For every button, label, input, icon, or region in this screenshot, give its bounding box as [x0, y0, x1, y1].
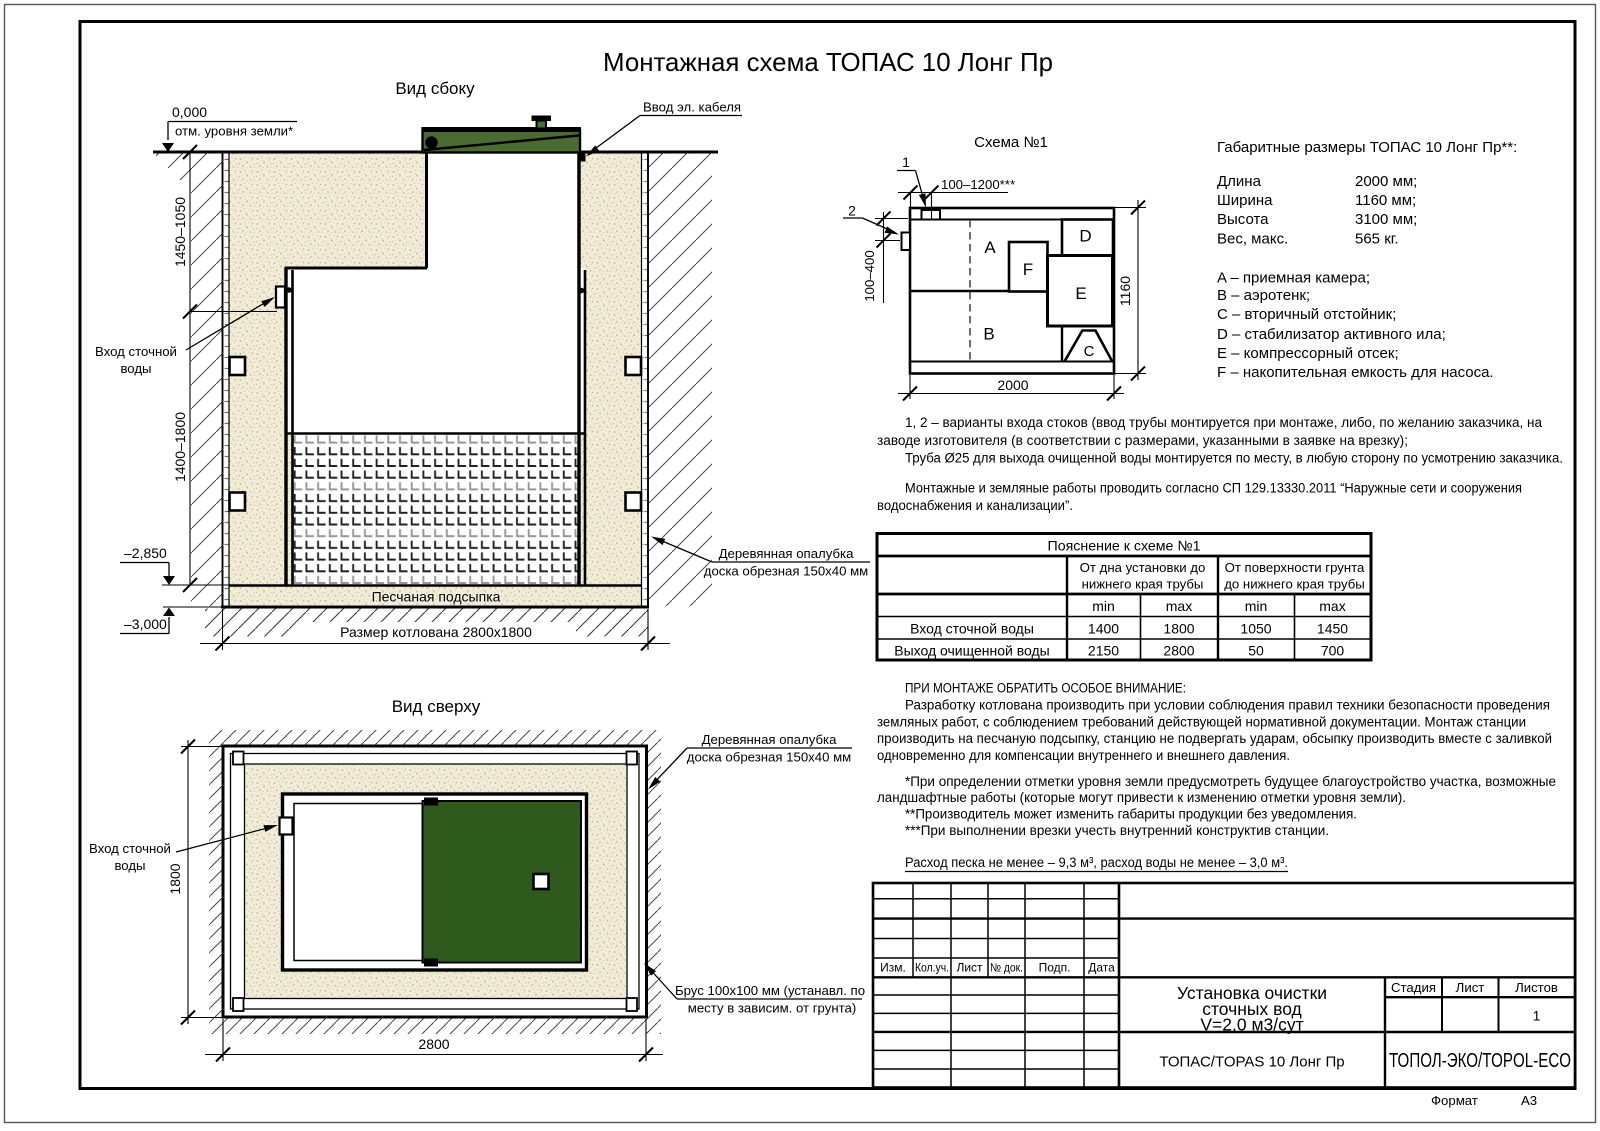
svg-text:1800: 1800 [1163, 621, 1194, 637]
svg-text:1160 мм;: 1160 мм; [1355, 192, 1416, 209]
svg-text:От поверхности грунта: От поверхности грунта [1225, 560, 1365, 575]
svg-text:min: min [1245, 598, 1268, 614]
svg-text:Высота: Высота [1217, 211, 1269, 228]
svg-text:0,000: 0,000 [172, 104, 207, 120]
svg-text:1160: 1160 [1117, 276, 1133, 306]
svg-text:Вес, макс.: Вес, макс. [1217, 231, 1288, 248]
svg-text:Листов: Листов [1515, 980, 1558, 995]
svg-text:B: B [983, 325, 994, 344]
svg-text:одновременно для компенсации в: одновременно для компенсации внутреннего… [877, 748, 1290, 764]
svg-text:Деревянная опалубка: Деревянная опалубка [719, 546, 854, 561]
svg-text:max: max [1319, 598, 1345, 614]
svg-text:водоснабжения и канализации”.: водоснабжения и канализации”. [877, 498, 1073, 514]
svg-text:Вход сточной: Вход сточной [89, 841, 171, 856]
svg-text:1800: 1800 [167, 863, 183, 894]
svg-text:100–1200***: 100–1200*** [941, 177, 1015, 192]
svg-text:ТОПАС/TOPAS 10 Лонг Пр: ТОПАС/TOPAS 10 Лонг Пр [1159, 1054, 1344, 1071]
svg-text:1050: 1050 [1240, 621, 1271, 637]
svg-text:Изм.: Изм. [880, 961, 906, 975]
svg-text:Пояснение к схеме №1: Пояснение к схеме №1 [1048, 539, 1201, 555]
svg-text:2000 мм;: 2000 мм; [1355, 173, 1417, 190]
svg-text:Схема №1: Схема №1 [974, 134, 1048, 151]
svg-text:100–400: 100–400 [862, 250, 877, 301]
svg-text:2150: 2150 [1088, 643, 1119, 659]
svg-text:№ док.: № док. [990, 961, 1023, 975]
svg-text:до нижнего края трубы: до нижнего края трубы [1224, 577, 1365, 592]
svg-text:воды: воды [114, 858, 145, 873]
svg-text:Брус 100х100 мм (устанавл. по: Брус 100х100 мм (устанавл. по [675, 983, 865, 998]
svg-text:месту в зависим. от грунта): месту в зависим. от грунта) [688, 1001, 856, 1016]
svg-text:C: C [1084, 343, 1095, 360]
svg-text:воды: воды [120, 361, 151, 376]
svg-text:1: 1 [902, 154, 910, 170]
svg-text:max: max [1166, 598, 1192, 614]
svg-text:ПРИ МОНТАЖЕ ОБРАТИТЬ ОСОБОЕ ВН: ПРИ МОНТАЖЕ ОБРАТИТЬ ОСОБОЕ ВНИМАНИЕ: [905, 681, 1186, 697]
svg-text:1: 1 [1533, 1008, 1541, 1024]
svg-text:2800: 2800 [1163, 643, 1194, 659]
svg-text:565 кг.: 565 кг. [1355, 231, 1399, 248]
svg-text:ландшафтные работы (которые мо: ландшафтные работы (которые могут привес… [877, 790, 1406, 806]
svg-text:Вход сточной: Вход сточной [95, 344, 177, 359]
svg-text:***При выполнении врезки учест: ***При выполнении врезки учесть внутренн… [905, 823, 1329, 839]
svg-text:Лист: Лист [956, 961, 983, 975]
svg-text:От дна установки до: От дна установки до [1080, 560, 1206, 575]
svg-text:Размер котлована 2800х1800: Размер котлована 2800х1800 [340, 624, 532, 640]
svg-text:нижнего края трубы: нижнего края трубы [1082, 577, 1204, 592]
svg-text:производить на песчаную подсып: производить на песчаную подсыпку, станци… [877, 731, 1552, 747]
svg-text:C – вторичный отстойник;: C – вторичный отстойник; [1217, 306, 1396, 323]
svg-text:Вид сверху: Вид сверху [392, 697, 481, 716]
svg-text:*При определении отметки уровн: *При определении отметки уровня земли пр… [905, 774, 1556, 790]
svg-text:–3,000: –3,000 [124, 616, 167, 632]
svg-text:Длина: Длина [1217, 173, 1262, 190]
svg-text:D – стабилизатор активного ила: D – стабилизатор активного ила; [1217, 326, 1446, 343]
svg-text:Деревянная опалубка: Деревянная опалубка [702, 732, 837, 747]
svg-text:1, 2 – варианты входа стоков: 1, 2 – варианты входа стоков (ввод трубы… [905, 415, 1542, 431]
svg-text:заводе изготовителя (в соответ: заводе изготовителя (в соответствии с ра… [877, 433, 1408, 449]
svg-text:Песчаная подсыпка: Песчаная подсыпка [372, 589, 501, 605]
svg-text:Лист: Лист [1456, 980, 1485, 995]
svg-text:1450: 1450 [1317, 621, 1348, 637]
svg-text:Габаритные размеры ТОПАС 10 Ло: Габаритные размеры ТОПАС 10 Лонг Пр**: [1217, 139, 1517, 156]
svg-text:2: 2 [848, 203, 856, 219]
svg-text:отм. уровня земли*: отм. уровня земли* [175, 124, 293, 139]
svg-text:Дата: Дата [1088, 961, 1115, 975]
svg-text:50: 50 [1248, 643, 1264, 659]
svg-text:2000: 2000 [997, 377, 1028, 393]
svg-text:А3: А3 [1521, 1093, 1537, 1108]
svg-text:земляных работ, с соблюдением: земляных работ, с соблюдением требований… [877, 715, 1526, 731]
svg-text:Разработку котлована производи: Разработку котлована производить при усл… [905, 698, 1550, 714]
svg-text:E – компрессорный отсек;: E – компрессорный отсек; [1217, 345, 1399, 362]
svg-text:Подп.: Подп. [1039, 961, 1071, 975]
svg-text:D: D [1079, 227, 1091, 246]
svg-text:Ширина: Ширина [1217, 192, 1273, 209]
svg-text:F – накопительная емкость для: F – накопительная емкость для насоса. [1217, 364, 1494, 381]
svg-text:Монтажные и земляные работы пр: Монтажные и земляные работы проводить со… [905, 481, 1522, 497]
svg-text:Расход песка не менее – 9,3 м³: Расход песка не менее – 9,3 м³, расход в… [905, 855, 1288, 871]
svg-text:доска обрезная 150х40 мм: доска обрезная 150х40 мм [704, 564, 868, 579]
svg-text:1400: 1400 [1088, 621, 1119, 637]
svg-text:Формат: Формат [1431, 1093, 1478, 1108]
svg-text:**Производитель может изменить: **Производитель может изменить габариты … [905, 807, 1357, 823]
svg-text:B – аэротенк;: B – аэротенк; [1217, 287, 1310, 304]
svg-text:3100 мм;: 3100 мм; [1355, 211, 1417, 228]
svg-text:V=2,0 м3/сут: V=2,0 м3/сут [1200, 1015, 1303, 1035]
svg-text:2800: 2800 [418, 1036, 449, 1052]
svg-text:E: E [1075, 284, 1086, 303]
svg-text:ТОПОЛ-ЭКО/TOPOL-ECO: ТОПОЛ-ЭКО/TOPOL-ECO [1389, 1050, 1571, 1072]
svg-text:A: A [984, 238, 996, 257]
svg-text:700: 700 [1321, 643, 1345, 659]
svg-text:min: min [1092, 598, 1115, 614]
svg-text:Вход сточной воды: Вход сточной воды [910, 621, 1034, 637]
svg-text:1400–1800: 1400–1800 [172, 412, 188, 482]
svg-text:Вид сбоку: Вид сбоку [395, 79, 475, 98]
svg-text:Труба Ø25 для выхода очищенной: Труба Ø25 для выхода очищенной воды монт… [905, 451, 1563, 467]
svg-text:F: F [1023, 260, 1033, 279]
svg-text:Монтажная схема ТОПАС 10 Лонг: Монтажная схема ТОПАС 10 Лонг Пр [603, 47, 1053, 77]
svg-text:Кол.уч.: Кол.уч. [915, 961, 949, 975]
svg-text:Ввод эл. кабеля: Ввод эл. кабеля [643, 100, 741, 115]
svg-text:Выход очищенной воды: Выход очищенной воды [894, 643, 1049, 659]
svg-text:–2,850: –2,850 [124, 545, 167, 561]
svg-text:доска обрезная 150х40 мм: доска обрезная 150х40 мм [687, 750, 851, 765]
svg-text:A – приемная камера;: A – приемная камера; [1217, 270, 1370, 287]
svg-text:Стадия: Стадия [1391, 980, 1436, 995]
svg-text:1450–1050: 1450–1050 [172, 197, 188, 267]
